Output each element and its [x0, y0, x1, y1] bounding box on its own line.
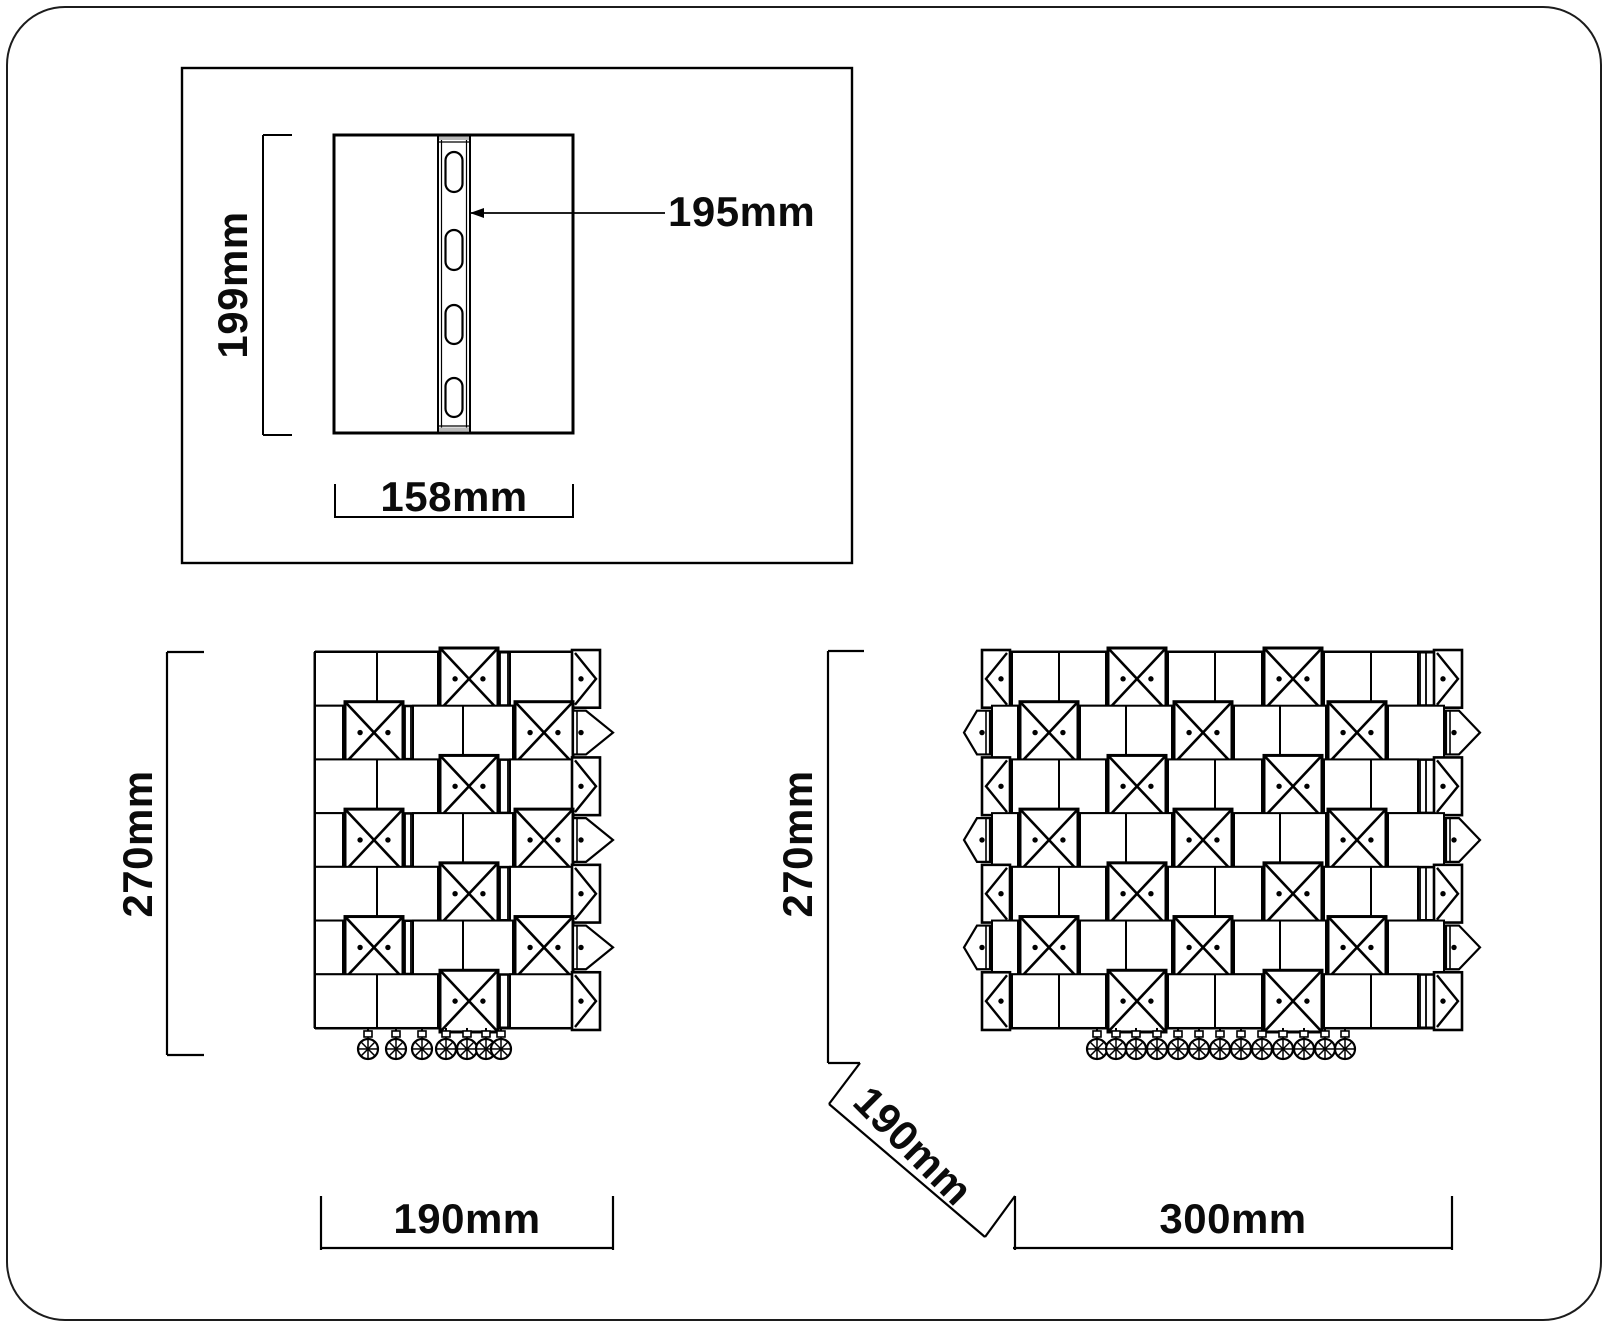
side-view-width-label: 190mm [393, 1198, 540, 1240]
backplate-bracket-label: 195mm [668, 191, 815, 233]
backplate-height-label: 199mm [212, 211, 254, 358]
dimension-drawing-page: 199mm 158mm 195mm 270mm 190mm 270mm 190m… [0, 0, 1608, 1327]
backplate-width-label: 158mm [380, 476, 527, 518]
front-view-height-label: 270mm [777, 770, 819, 917]
side-view-height-label: 270mm [117, 770, 159, 917]
front-view-width-label: 300mm [1159, 1198, 1306, 1240]
